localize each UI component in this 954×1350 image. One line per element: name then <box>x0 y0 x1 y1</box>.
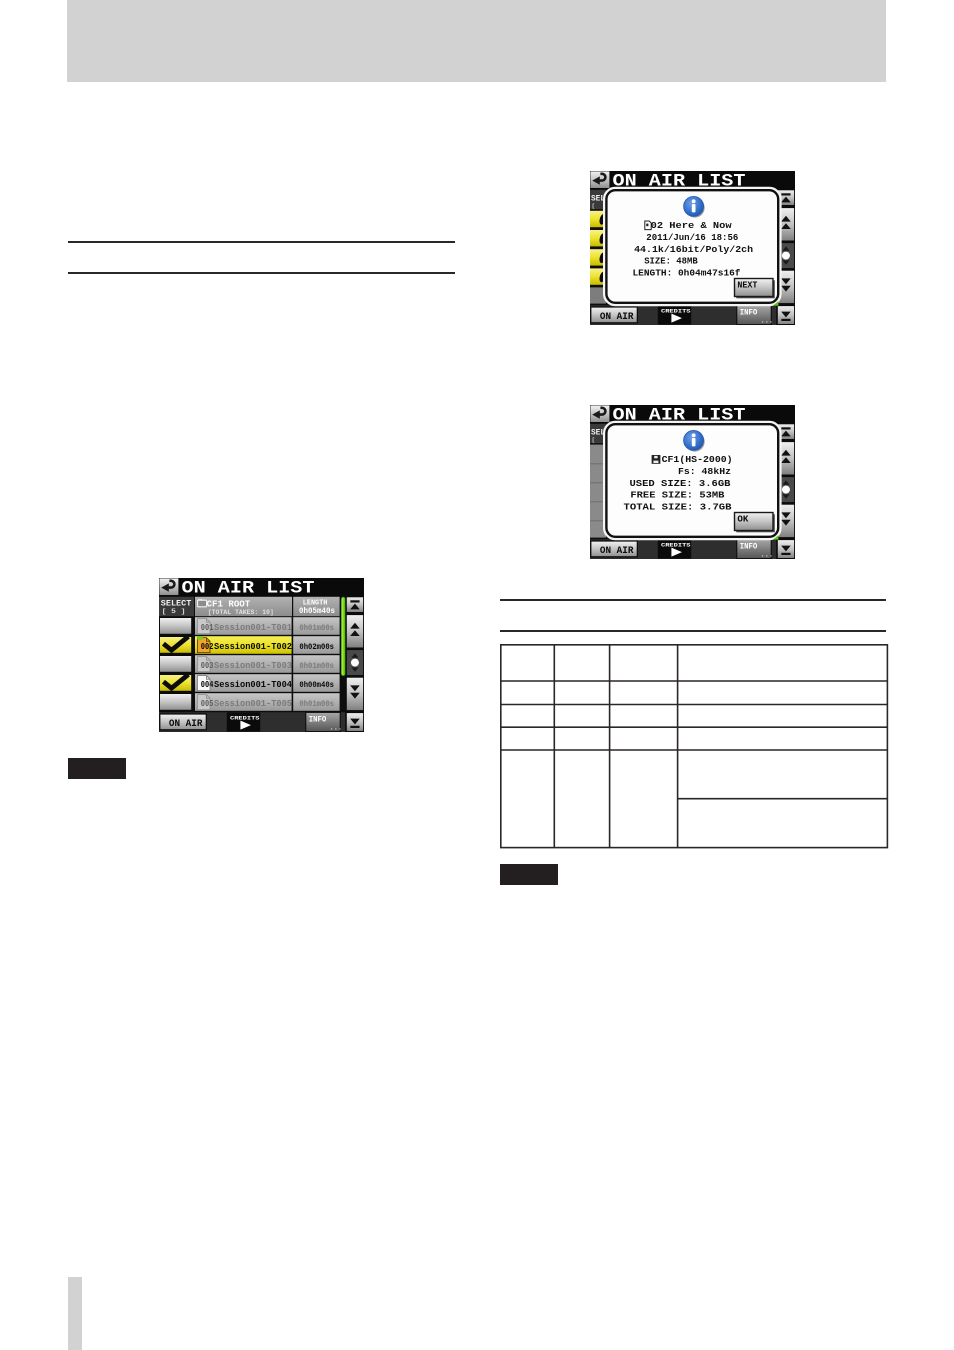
svg-text:0h01m00s: 0h01m00s <box>299 661 334 671</box>
svg-text:CF1(HS-2000): CF1(HS-2000) <box>662 454 733 465</box>
svg-text:002: 002 <box>201 642 214 652</box>
svg-text:Fs: 48kHz: Fs: 48kHz <box>678 466 731 477</box>
svg-text:CREDITS: CREDITS <box>661 541 691 548</box>
svg-text:Session001-T002: Session001-T002 <box>214 641 292 652</box>
svg-text:Session001-T001: Session001-T001 <box>214 622 292 633</box>
svg-text:004: 004 <box>201 680 214 690</box>
svg-text:02 Here & Now: 02 Here & Now <box>651 220 732 231</box>
svg-text:INFO: INFO <box>740 542 758 551</box>
svg-text:005: 005 <box>201 699 214 709</box>
svg-text:...: ... <box>761 552 774 559</box>
svg-text:SIZE: 48MB: SIZE: 48MB <box>644 256 698 267</box>
svg-text:0h01m00s: 0h01m00s <box>299 699 334 709</box>
svg-text:003: 003 <box>201 661 214 671</box>
svg-text:...: ... <box>330 725 343 732</box>
svg-text:0h02m00s: 0h02m00s <box>299 642 334 652</box>
svg-text:[: [ <box>592 436 595 443</box>
svg-text:INFO: INFO <box>309 715 327 724</box>
svg-text:CREDITS: CREDITS <box>230 714 260 721</box>
svg-text:OK: OK <box>737 515 749 525</box>
svg-text:ON AIR: ON AIR <box>600 546 634 557</box>
svg-text:[: [ <box>592 202 595 209</box>
svg-text:Session001-T003: Session001-T003 <box>214 660 292 671</box>
svg-text:001: 001 <box>201 623 214 633</box>
svg-text:0h00m40s: 0h00m40s <box>299 680 334 690</box>
svg-text:2011/Jun/16 18:56: 2011/Jun/16 18:56 <box>646 232 738 243</box>
svg-text:Session001-T004: Session001-T004 <box>214 679 292 690</box>
svg-text:INFO: INFO <box>740 308 758 317</box>
svg-text:...: ... <box>761 318 774 325</box>
svg-text:0h01m00s: 0h01m00s <box>299 623 334 633</box>
svg-text:[TOTAL TAKES: 10]: [TOTAL TAKES: 10] <box>208 609 274 616</box>
svg-text:ON AIR: ON AIR <box>600 312 634 323</box>
svg-text:0h05m40s: 0h05m40s <box>299 606 335 616</box>
svg-text:CREDITS: CREDITS <box>661 307 691 314</box>
svg-text:FREE SIZE: 53MB: FREE SIZE: 53MB <box>630 490 724 501</box>
svg-text:ON AIR LIST: ON AIR LIST <box>182 578 315 598</box>
svg-text:ON AIR: ON AIR <box>169 719 203 730</box>
svg-text:NEXT: NEXT <box>737 281 758 291</box>
svg-text:44.1k/16bit/Poly/2ch: 44.1k/16bit/Poly/2ch <box>634 244 753 255</box>
svg-text:Session001-T005: Session001-T005 <box>214 698 292 709</box>
svg-text:USED SIZE: 3.6GB: USED SIZE: 3.6GB <box>630 478 731 489</box>
svg-text:TOTAL SIZE: 3.7GB: TOTAL SIZE: 3.7GB <box>624 501 732 512</box>
svg-text:[ 5 ]: [ 5 ] <box>162 608 186 615</box>
svg-text:LENGTH: 0h04m47s16f: LENGTH: 0h04m47s16f <box>633 267 741 278</box>
